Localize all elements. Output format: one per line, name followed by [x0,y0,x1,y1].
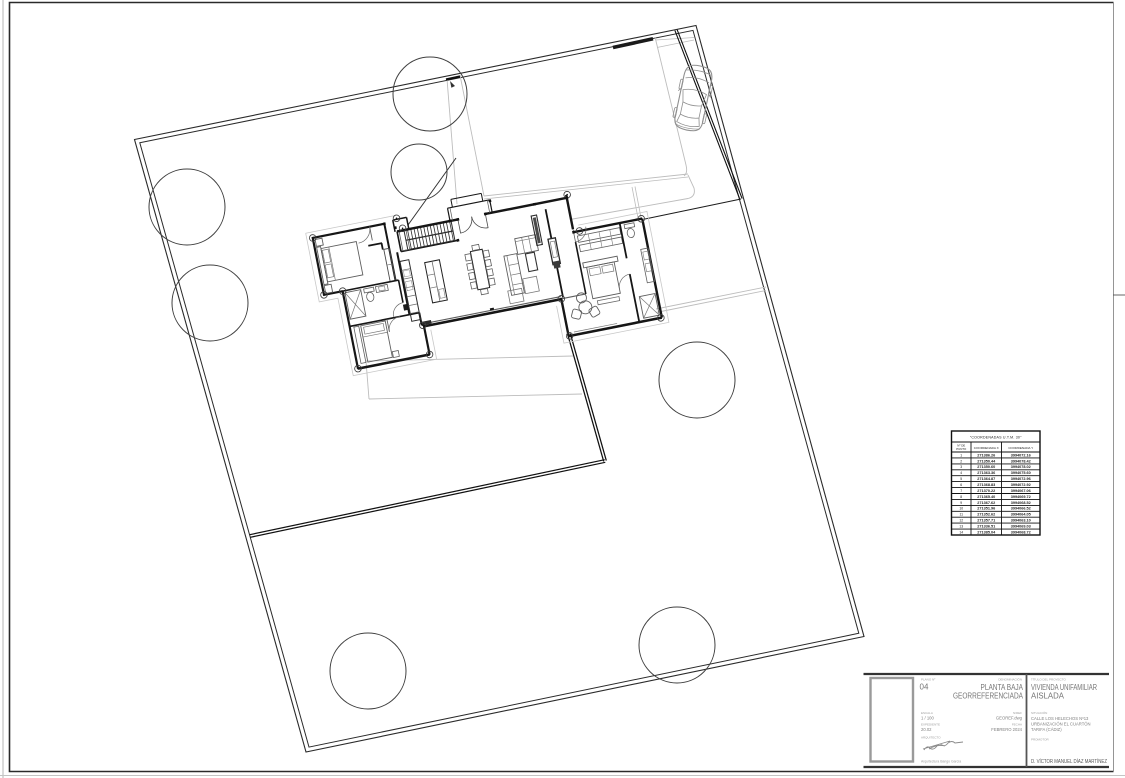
svg-text:3994068.52: 3994068.52 [1011,501,1031,505]
svg-text:04: 04 [920,683,929,692]
svg-text:11: 11 [959,513,963,517]
svg-text:8: 8 [960,495,962,499]
svg-text:ESCALA: ESCALA [921,711,933,715]
svg-text:PUNTO: PUNTO [956,447,967,451]
svg-text:271357.71: 271357.71 [977,519,995,523]
svg-text:13: 13 [959,525,963,529]
svg-text:271363.36: 271363.36 [977,471,995,475]
svg-text:3994078.02: 3994078.02 [1011,465,1031,469]
svg-text:URBANIZACIÓN EL CUARTÓN: URBANIZACIÓN EL CUARTÓN [1031,722,1091,727]
svg-text:271350.44: 271350.44 [977,459,996,463]
svg-text:9: 9 [960,501,962,505]
svg-text:6: 6 [960,483,962,487]
svg-text:DENOMINACIÓN: DENOMINACIÓN [998,677,1022,682]
svg-text:3994066.52: 3994066.52 [1011,507,1031,511]
svg-text:"COORDENADAS U.T.M. 30": "COORDENADAS U.T.M. 30" [970,436,1022,440]
svg-text:7: 7 [960,489,962,493]
svg-text:1 / 100: 1 / 100 [921,716,934,721]
svg-text:PROMOTOR: PROMOTOR [1031,738,1049,742]
svg-text:3994072.16: 3994072.16 [1011,453,1031,457]
svg-text:271370.22: 271370.22 [977,489,995,493]
svg-text:271365.40: 271365.40 [977,495,995,499]
svg-text:271385.04: 271385.04 [977,530,996,534]
svg-text:271351.96: 271351.96 [977,507,995,511]
svg-text:PLANO Nº: PLANO Nº [921,678,936,682]
svg-text:GEORREFERENCIADA: GEORREFERENCIADA [953,692,1024,701]
svg-text:271350.60: 271350.60 [977,465,995,469]
svg-text:3994078.42: 3994078.42 [1011,459,1031,463]
svg-text:Arquitectura Bango García: Arquitectura Bango García [921,760,961,764]
svg-text:271367.62: 271367.62 [977,501,995,505]
svg-text:3: 3 [960,465,962,469]
svg-text:CALLE LOS HELECHOS Nº13: CALLE LOS HELECHOS Nº13 [1031,716,1089,721]
svg-text:D. VÍCTOR MANUEL DÍAZ MARTÍNEZ: D. VÍCTOR MANUEL DÍAZ MARTÍNEZ [1031,758,1107,765]
svg-text:271352.62: 271352.62 [977,513,995,517]
svg-text:COORDENADA X: COORDENADA X [974,446,999,450]
svg-text:FECHA: FECHA [1012,723,1022,727]
svg-text:3994064.05: 3994064.05 [1011,513,1031,517]
svg-text:SITUACIÓN: SITUACIÓN [1031,710,1047,715]
svg-text:12: 12 [959,519,963,523]
svg-text:N/REF: N/REF [1013,711,1022,715]
svg-text:COORDENADA Y: COORDENADA Y [1008,446,1033,450]
svg-text:1: 1 [960,453,962,457]
svg-text:TARIFA (CÁDIZ): TARIFA (CÁDIZ) [1031,727,1062,732]
svg-text:20.02: 20.02 [921,727,932,732]
svg-text:3994068.72: 3994068.72 [1011,530,1031,534]
svg-text:EXPEDIENTE: EXPEDIENTE [921,723,940,727]
svg-text:3994067.06: 3994067.06 [1011,489,1031,493]
svg-text:3994075.60: 3994075.60 [1011,471,1031,475]
svg-text:3994063.10: 3994063.10 [1011,519,1031,523]
svg-text:TÍTULO DEL PROYECTO: TÍTULO DEL PROYECTO [1031,678,1067,682]
svg-text:AISLADA: AISLADA [1031,692,1065,701]
svg-text:GEOREF.dwg: GEOREF.dwg [996,716,1023,721]
svg-text:271368.83: 271368.83 [977,483,995,487]
svg-text:271336.51: 271336.51 [977,525,995,529]
svg-text:3994069.72: 3994069.72 [1011,495,1031,499]
svg-text:3994069.03: 3994069.03 [1011,525,1031,529]
svg-text:3994072.92: 3994072.92 [1011,483,1031,487]
svg-text:3994072.96: 3994072.96 [1011,477,1031,481]
svg-text:2: 2 [960,459,962,463]
svg-text:14: 14 [959,530,963,534]
svg-text:ARQUITECTO: ARQUITECTO [921,736,941,740]
svg-text:4: 4 [960,471,962,475]
svg-text:5: 5 [960,477,962,481]
svg-text:271364.87: 271364.87 [977,477,995,481]
svg-text:10: 10 [959,507,963,511]
svg-text:271386.26: 271386.26 [977,453,995,457]
svg-text:FEBRERO 2024: FEBRERO 2024 [991,727,1022,732]
